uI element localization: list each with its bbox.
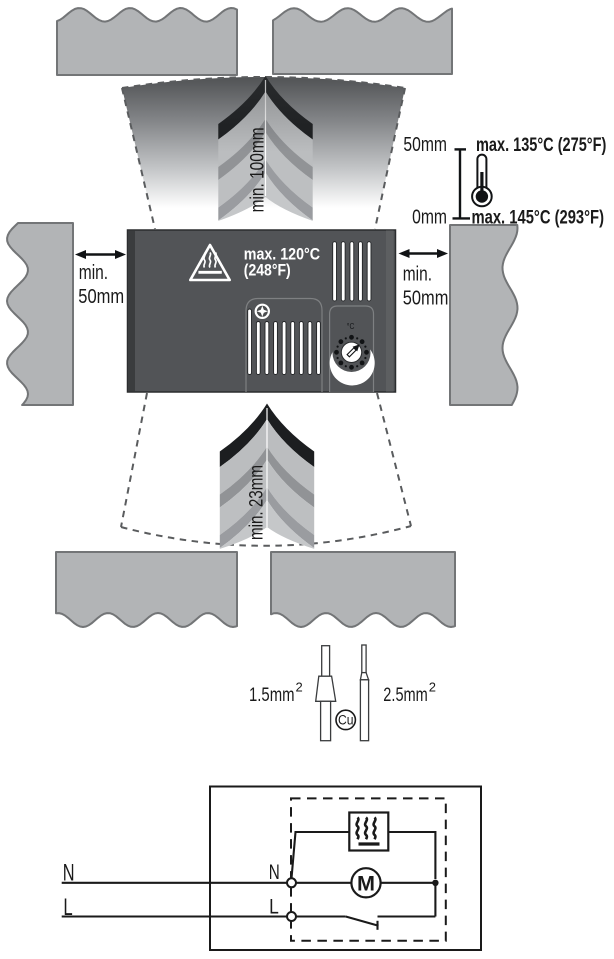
svg-text:max. 135°C (275°F): max. 135°C (275°F)	[476, 135, 606, 156]
svg-text:50mm: 50mm	[403, 287, 449, 309]
svg-text:max. 145°C (293°F): max. 145°C (293°F)	[472, 208, 605, 229]
svg-text:Cu: Cu	[338, 713, 354, 728]
svg-text:(248°F): (248°F)	[244, 261, 291, 279]
svg-text:L: L	[269, 896, 279, 919]
svg-text:min.: min.	[79, 262, 108, 284]
svg-text:min. 100mm: min. 100mm	[247, 127, 268, 212]
svg-text:0mm: 0mm	[412, 207, 447, 229]
svg-text:50mm: 50mm	[78, 286, 124, 308]
svg-text:M: M	[357, 872, 375, 895]
svg-text:50mm: 50mm	[403, 134, 447, 156]
svg-text:N: N	[269, 861, 280, 884]
svg-text:°C: °C	[347, 322, 355, 331]
svg-text:min.: min.	[403, 264, 432, 286]
svg-text:1.5mm: 1.5mm	[249, 684, 295, 706]
svg-text:2: 2	[296, 680, 303, 695]
svg-text:min. 23mm: min. 23mm	[247, 465, 268, 540]
svg-text:2: 2	[429, 680, 436, 695]
svg-text:2.5mm: 2.5mm	[383, 684, 428, 706]
